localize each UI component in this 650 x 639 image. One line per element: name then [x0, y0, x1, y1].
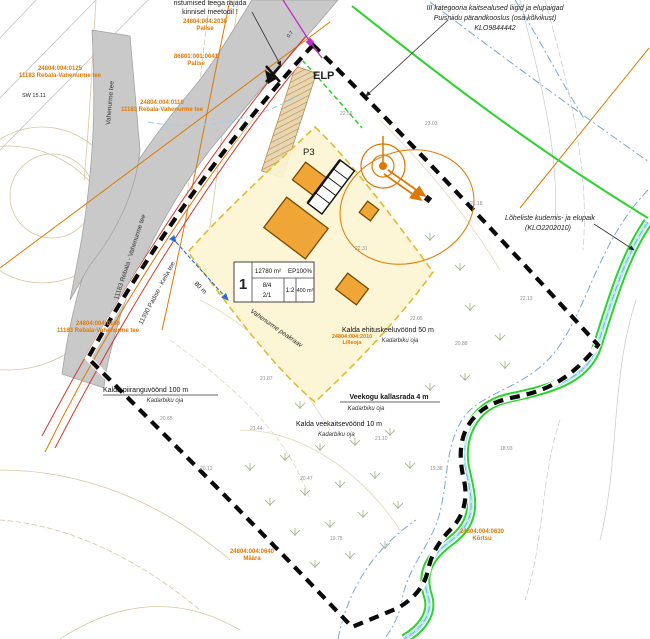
habitat-note-line1: III kategooria kaitsealused liigid ja el…	[427, 5, 565, 12]
spot-height: 22.31	[355, 246, 368, 252]
spot-height: 19.38	[430, 466, 443, 472]
elp-label: ELP	[313, 70, 334, 82]
spot-height: 22.05	[410, 316, 423, 322]
spot-height: 20.88	[455, 341, 468, 347]
plot-heights-value: 8/4	[263, 282, 272, 289]
detail-plan-map: 80 m 1 12780 m² EP100% 8/4 2/1 1:2 40	[0, 0, 650, 639]
zone-kallasrada: Veekogu kallasrada 4 m Kadarbiku oja	[340, 394, 440, 412]
dimension-label: 80 m	[193, 280, 208, 295]
plot-building-area-value: 400 m²	[297, 288, 314, 294]
zone-kallasrada-stream: Kadarbiku oja	[348, 406, 385, 412]
cadastral-2-code: 24804:004:0125	[38, 66, 83, 72]
cadastral-1-code: 86801:001:0041	[174, 54, 219, 60]
spot-height: 22.13	[520, 296, 533, 302]
cadastral-7-name: Lilleoja	[343, 340, 363, 346]
cadastral-2-name: 11183 Rebala-Vahenurme tee	[19, 73, 102, 79]
plot-coverage-value: EP100%	[288, 268, 313, 275]
spot-height: 20.47	[300, 476, 313, 482]
spot-height: 21.87	[260, 376, 273, 382]
zone-piirang-label: Kalda piiranguvöönd 100 m	[103, 387, 188, 394]
spot-height: 21.10	[375, 436, 388, 442]
spawning-note-line2: (KLO2202010)	[525, 225, 571, 232]
plan-drawing-canvas: 80 m 1 12780 m² EP100% 8/4 2/1 1:2 40	[0, 0, 650, 639]
spot-height: 23.03	[425, 121, 438, 127]
spot-height: 20.65	[160, 416, 173, 422]
cadastral-1-name: Palise	[187, 61, 205, 67]
cadastral-5-code: 24804:004:0640	[230, 549, 275, 555]
cadastral-3-name: 11183 Rebala-Vahenurme tee	[121, 107, 204, 113]
benchmark-label: SW 15.11	[22, 93, 46, 99]
zone-veekaitse: Kalda veekaitsevöönd 10 m Kadarbiku oja	[296, 421, 382, 438]
zone-kallasrada-label: Veekogu kallasrada 4 m	[350, 394, 429, 401]
spawning-note-line1: Lõheliste kudemis- ja elupaik	[505, 215, 595, 222]
plot-area-value: 12780 m²	[255, 268, 281, 275]
cadastral-4-code: 24804:004:0140	[76, 321, 121, 327]
plot-number: 1	[239, 276, 247, 293]
spot-height: 20.12	[200, 466, 213, 472]
cadastral-3-code: 24804:004:0110	[140, 100, 184, 106]
spot-height: 18.93	[500, 446, 513, 452]
spot-height: 21.44	[250, 426, 263, 432]
zone-veekaitse-stream: Kadarbiku oja	[318, 432, 355, 438]
building-rights-table: 1 12780 m² EP100% 8/4 2/1 1:2 400 m²	[234, 262, 314, 302]
cadastral-4-name: 11183 Rebala-Vahenurme tee	[57, 328, 140, 334]
zone-keeld-label: Kalda ehituskeeluvöönd 50 m	[342, 327, 434, 334]
zone-veekaitse-label: Kalda veekaitsevöönd 10 m	[296, 421, 382, 428]
cadastral-5-name: Määra	[243, 556, 261, 562]
habitat-note-line2: Puisniidu pärandkooslus (osa kõlvikust)	[434, 15, 557, 22]
cadastral-6-name: Kõrtsu	[472, 536, 492, 542]
zone-piirang: Kalda piiranguvöönd 100 m Kadarbiku oja	[103, 387, 218, 404]
crossing-note-line2: kinnisel meetodil !	[182, 9, 238, 16]
spot-height: 22.56	[340, 111, 353, 117]
cadastral-0-code: 24804:004:2030	[183, 19, 228, 25]
zone-keeld-stream: Kadarbiku oja	[382, 338, 419, 344]
spot-height: 21.18	[470, 201, 483, 207]
stream	[404, 222, 648, 639]
plot-roof-value: 1:2	[286, 287, 295, 294]
cadastral-6-code: 24804:004:0630	[460, 529, 505, 535]
crossing-note-line1: ristumised teega rajada	[174, 0, 247, 7]
cadastral-0-name: Palise	[196, 26, 214, 32]
zone-piirang-stream: Kadarbiku oja	[147, 398, 184, 404]
parking-label: P3	[303, 147, 315, 158]
spot-height: 19.75	[330, 536, 343, 542]
habitat-note-line3: KLO9844442	[474, 25, 515, 32]
plot-floors-value: 2/1	[263, 292, 272, 299]
